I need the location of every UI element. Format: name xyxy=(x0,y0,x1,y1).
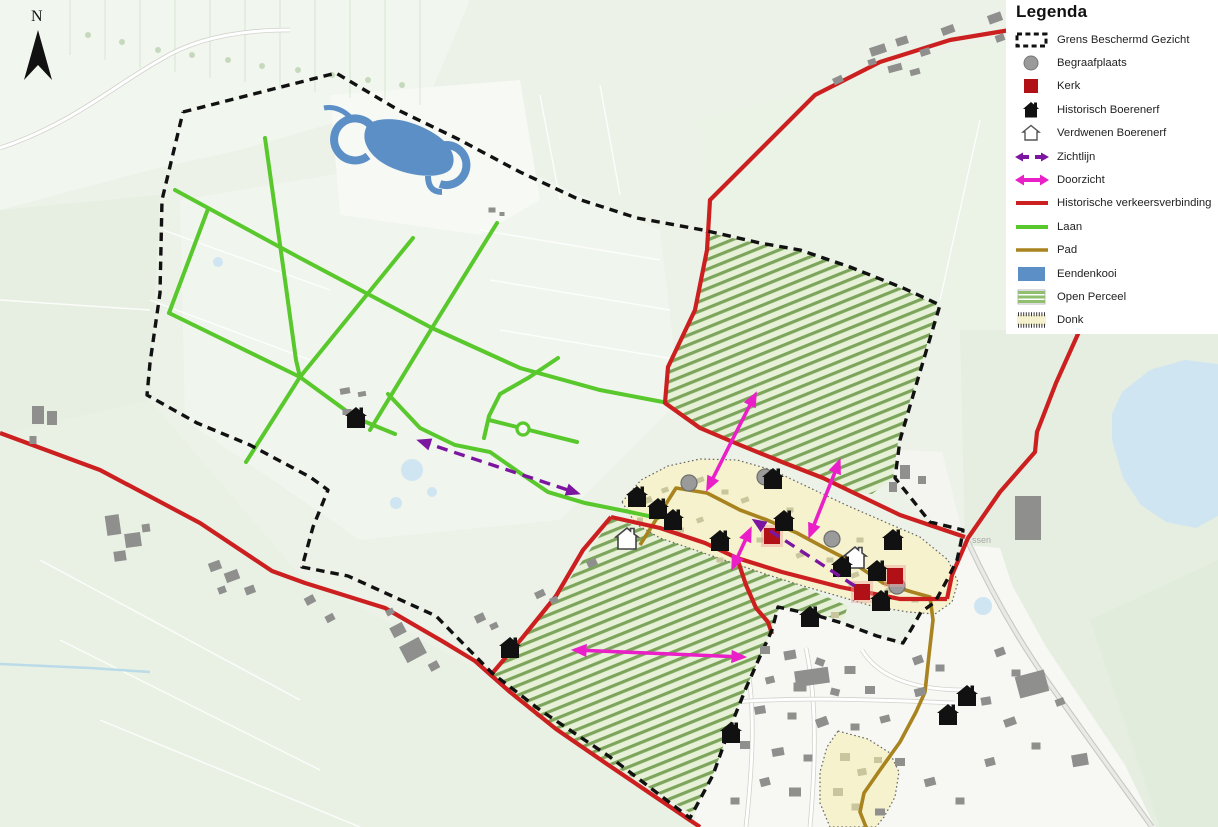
legend-label: Eendenkooi xyxy=(1057,268,1117,280)
legend-label: Open Perceel xyxy=(1057,291,1126,303)
church-icon xyxy=(854,584,870,600)
legend-label: Historische verkeersverbinding xyxy=(1057,197,1211,209)
church-icon xyxy=(1014,77,1050,95)
open-parcel-icon xyxy=(1014,288,1050,306)
legend-label: Pad xyxy=(1057,244,1077,256)
legend-item-begraafplaats: Begraafplaats xyxy=(1014,51,1218,74)
legend-label: Doorzicht xyxy=(1057,174,1105,186)
historic-farm-icon xyxy=(1014,101,1050,119)
legend-item-grens: Grens Beschermd Gezicht xyxy=(1014,28,1218,51)
place-name-label: ssen xyxy=(972,535,991,545)
protected-boundary-icon xyxy=(1014,31,1050,49)
legend-label: Historisch Boerenerf xyxy=(1057,104,1159,116)
legend-label: Kerk xyxy=(1057,80,1080,92)
legend-title: Legenda xyxy=(1016,2,1218,22)
legend-item-zichtlijn: Zichtlijn xyxy=(1014,145,1218,168)
north-label: N xyxy=(31,8,43,26)
map-figure: ssen N Legenda Grens Beschermd Gezicht B… xyxy=(0,0,1218,827)
legend-panel: Legenda Grens Beschermd Gezicht Begraafp… xyxy=(1006,0,1218,334)
legend-item-doorzicht: Doorzicht xyxy=(1014,168,1218,191)
legend-label: Donk xyxy=(1057,314,1083,326)
cemetery-icon xyxy=(681,475,697,491)
lane-icon xyxy=(1014,218,1050,236)
church-icon xyxy=(887,568,903,584)
vista-icon xyxy=(1014,171,1050,189)
legend-label: Laan xyxy=(1057,221,1082,233)
cemetery-icon xyxy=(1014,54,1050,72)
labels: ssen xyxy=(972,535,991,545)
legend-label: Begraafplaats xyxy=(1057,57,1127,69)
legend-label: Zichtlijn xyxy=(1057,151,1095,163)
legend-item-donk: Donk xyxy=(1014,309,1218,332)
cemetery-icon xyxy=(824,531,840,547)
legend-item-historisch-boerenerf: Historisch Boerenerf xyxy=(1014,98,1218,121)
legend-item-open-perceel: Open Perceel xyxy=(1014,285,1218,308)
path-icon xyxy=(1014,241,1050,259)
sightline-icon xyxy=(1014,148,1050,166)
legend-item-kerk: Kerk xyxy=(1014,75,1218,98)
legend-item-pad: Pad xyxy=(1014,239,1218,262)
legend-label: Verdwenen Boerenerf xyxy=(1057,127,1166,139)
historic-road-icon xyxy=(1014,194,1050,212)
legend-label: Grens Beschermd Gezicht xyxy=(1057,34,1189,46)
north-arrow: N xyxy=(18,8,62,88)
legend-item-verdwenen-boerenerf: Verdwenen Boerenerf xyxy=(1014,122,1218,145)
duck-decoy-icon xyxy=(1014,265,1050,283)
legend-item-eendenkooi: Eendenkooi xyxy=(1014,262,1218,285)
legend-item-historische-verkeersverbinding: Historische verkeersverbinding xyxy=(1014,192,1218,215)
vanished-farm-icon xyxy=(1014,124,1050,142)
donk-icon xyxy=(1014,311,1050,329)
legend-item-laan: Laan xyxy=(1014,215,1218,238)
